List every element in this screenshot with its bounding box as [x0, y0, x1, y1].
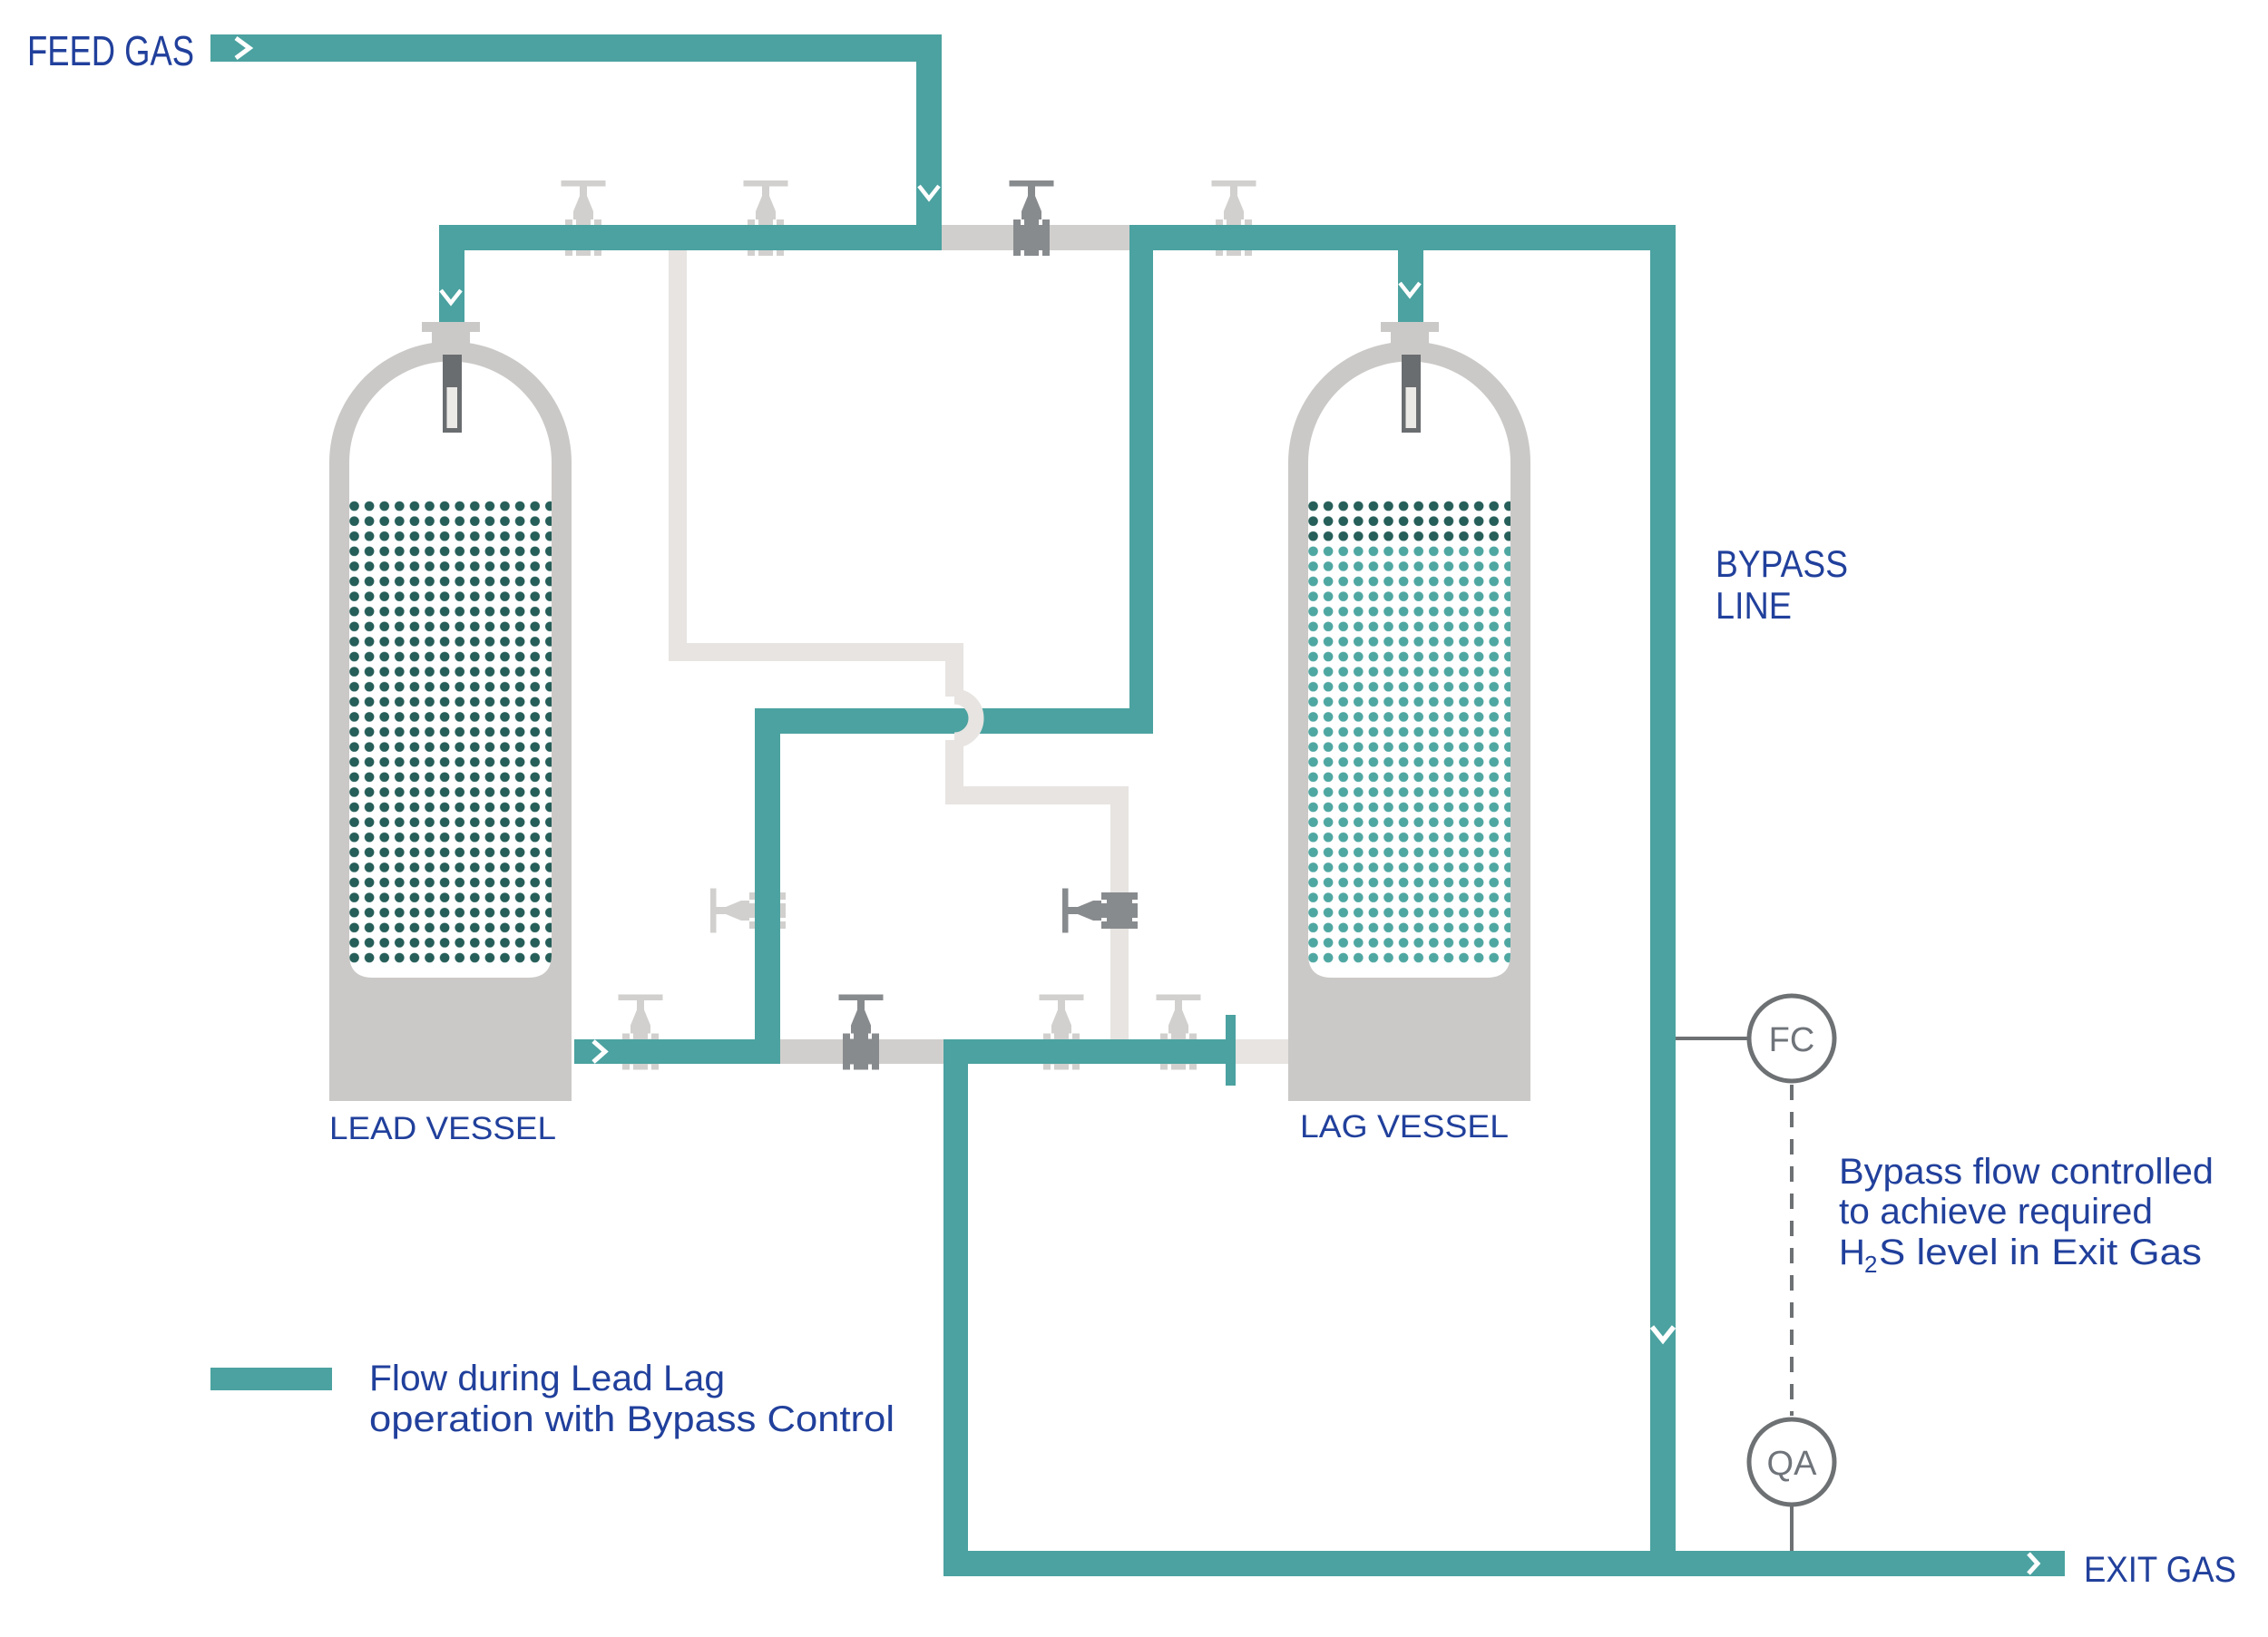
svg-text:FEED GAS: FEED GAS — [27, 27, 194, 74]
svg-text:LINE: LINE — [1716, 584, 1792, 627]
svg-text:Bypass flow controlled: Bypass flow controlled — [1839, 1152, 2214, 1192]
svg-text:operation with Bypass Control: operation with Bypass Control — [369, 1399, 894, 1439]
svg-text:EXIT GAS: EXIT GAS — [2084, 1550, 2236, 1590]
svg-text:H: H — [1839, 1233, 1865, 1272]
svg-text:LEAD VESSEL: LEAD VESSEL — [329, 1111, 556, 1146]
svg-text:LAG VESSEL: LAG VESSEL — [1300, 1109, 1509, 1145]
svg-text:QA: QA — [1767, 1445, 1818, 1483]
svg-text:2: 2 — [1864, 1251, 1877, 1278]
svg-text:Flow during Lead Lag: Flow during Lead Lag — [369, 1359, 725, 1398]
svg-text:S level in Exit Gas: S level in Exit Gas — [1879, 1233, 2202, 1272]
svg-text:BYPASS: BYPASS — [1716, 542, 1848, 585]
svg-text:FC: FC — [1769, 1021, 1815, 1059]
svg-text:to achieve required: to achieve required — [1839, 1192, 2153, 1232]
